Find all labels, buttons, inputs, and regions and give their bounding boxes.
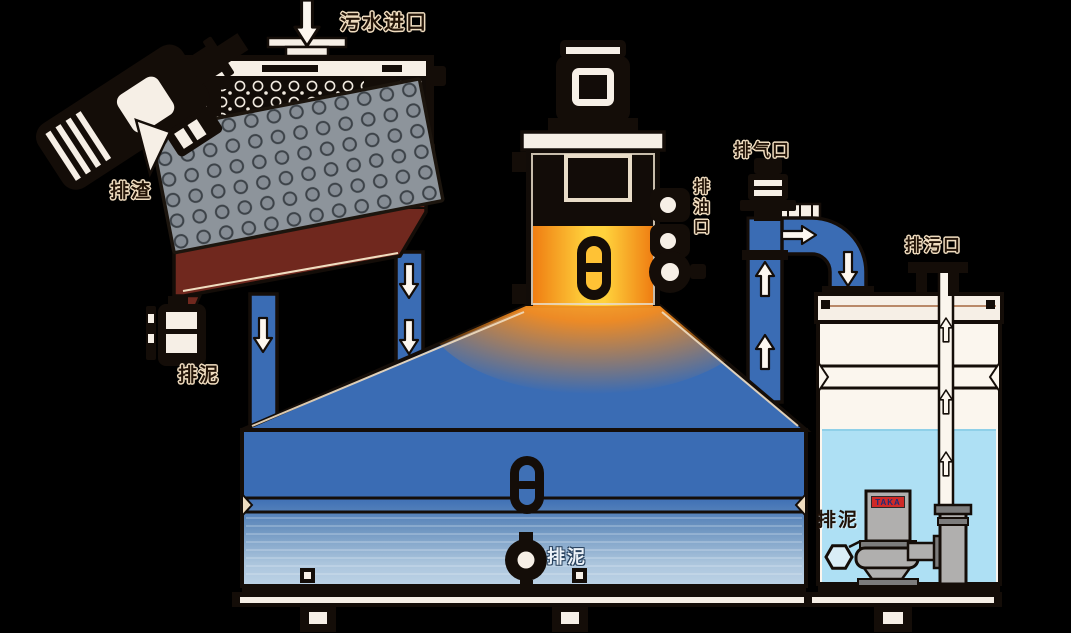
inlet-label: 污水进口 bbox=[340, 12, 428, 34]
drain-outlet-label: 排污口 bbox=[905, 237, 962, 256]
tank-chain bbox=[510, 456, 544, 514]
left-sludge-valve bbox=[146, 296, 206, 366]
pump-brand-label: TAKA bbox=[871, 496, 905, 508]
column-motor bbox=[548, 40, 638, 132]
sludge-discharge-left-label: 排泥 bbox=[178, 366, 220, 387]
check-valve bbox=[934, 505, 971, 584]
sludge-discharge-bottom-label: 排泥 bbox=[547, 548, 587, 568]
separator-diagram bbox=[0, 0, 1071, 633]
tank-lid bbox=[816, 294, 1002, 322]
diagram-canvas: 污水进口 排渣 排泥 排油口 排气口 排污口 排泥 排泥 TAKA bbox=[0, 0, 1071, 633]
sludge-discharge-right-label: 排泥 bbox=[817, 511, 859, 532]
slag-discharge-label: 排渣 bbox=[110, 182, 152, 203]
column-window bbox=[566, 156, 630, 200]
base-skid bbox=[232, 592, 1002, 632]
oil-port-label: 排油口 bbox=[690, 178, 708, 238]
column-chain bbox=[577, 236, 611, 300]
skid-foot bbox=[300, 606, 912, 632]
vent-label: 排气口 bbox=[734, 142, 791, 161]
separator-column bbox=[512, 40, 706, 306]
main-tank bbox=[242, 218, 806, 593]
